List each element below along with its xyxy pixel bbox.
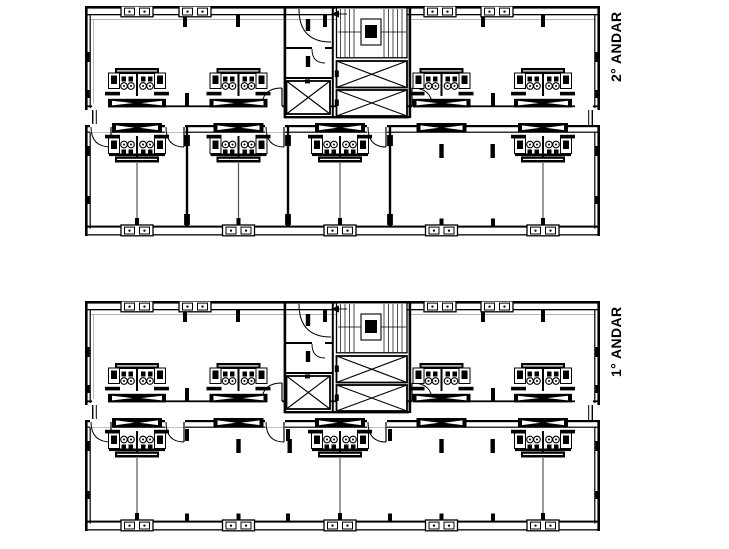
core-stairs-elevators (284, 301, 412, 413)
louver-window (315, 418, 365, 428)
door-arc (265, 419, 285, 442)
louver-window (518, 418, 568, 428)
floor-label: 1° ANDAR (608, 299, 624, 377)
plan (85, 6, 600, 236)
louver-window (214, 418, 264, 428)
window-pair (121, 301, 153, 312)
wc-cluster (511, 135, 575, 163)
window-pair (527, 225, 559, 236)
wc-cluster (511, 363, 575, 402)
wc-cluster (308, 135, 372, 163)
floor-plan-2-andar: 2° ANDAR (85, 6, 600, 238)
window-pair (481, 301, 513, 312)
window-pair (424, 301, 456, 312)
window-pair (223, 225, 255, 236)
wc-cluster (511, 430, 575, 458)
louver-window (518, 123, 568, 133)
window-pair (121, 225, 153, 236)
elevator (335, 356, 407, 383)
louver-window (417, 418, 467, 428)
core-stairs-elevators (284, 6, 412, 118)
window-pair (121, 520, 153, 531)
floor-plan-drawing (85, 6, 600, 238)
floor-plan-1-andar: 1° ANDAR (85, 301, 600, 533)
floor-label: 2° ANDAR (608, 4, 624, 82)
wc-cluster (207, 363, 271, 402)
louver-window (315, 123, 365, 133)
staircase (331, 303, 407, 353)
floor-plan-drawing (85, 301, 600, 533)
louver-window (112, 418, 162, 428)
louver-window (112, 123, 162, 133)
window-pair (527, 520, 559, 531)
window-pair (223, 520, 255, 531)
window-pair (481, 6, 513, 17)
wc-cluster (511, 68, 575, 107)
window-pair (179, 6, 211, 17)
window-pair (324, 520, 356, 531)
window-pair (426, 520, 458, 531)
elevator (287, 79, 331, 114)
louver-window (214, 123, 264, 133)
elevator (287, 374, 331, 409)
separating-wall (387, 127, 393, 227)
elevator (335, 90, 407, 116)
wc-cluster (105, 363, 169, 402)
plan (85, 301, 600, 531)
elevator (335, 385, 407, 411)
louver-window (417, 123, 467, 133)
window-pair (179, 301, 211, 312)
floorplan-sheet: 2° ANDAR 1° ANDAR (0, 0, 729, 549)
wc-cluster (105, 430, 169, 458)
wc-cluster (105, 135, 169, 163)
wc-cluster (410, 68, 474, 107)
staircase (331, 8, 407, 58)
window-pair (426, 225, 458, 236)
wc-cluster (207, 135, 271, 163)
separating-wall (285, 127, 291, 227)
separating-wall (184, 127, 190, 227)
wc-cluster (308, 430, 372, 458)
wc-cluster (207, 68, 271, 107)
wc-cluster (410, 363, 474, 402)
elevator (335, 61, 407, 88)
window-pair (121, 6, 153, 17)
wc-cluster (105, 68, 169, 107)
window-pair (324, 225, 356, 236)
window-pair (424, 6, 456, 17)
